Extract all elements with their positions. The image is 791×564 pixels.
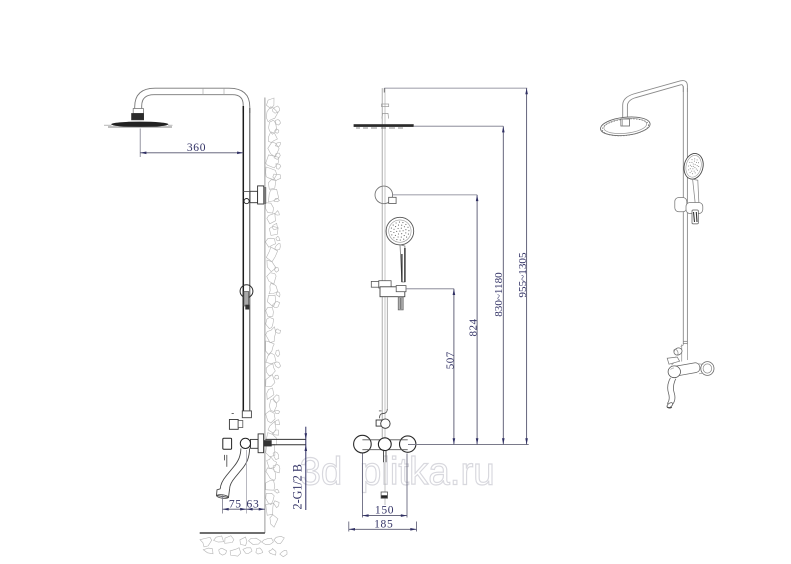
svg-text:955~1305: 955~1305	[517, 252, 529, 298]
svg-text:75: 75	[229, 498, 242, 510]
svg-text:63: 63	[247, 498, 260, 510]
svg-text:507: 507	[444, 351, 456, 369]
svg-text:150: 150	[375, 505, 394, 517]
svg-text:plitka.ru: plitka.ru	[360, 451, 495, 494]
svg-text:185: 185	[374, 519, 393, 531]
svg-text:360: 360	[187, 142, 206, 154]
svg-text:824: 824	[468, 319, 480, 337]
svg-text:830~1180: 830~1180	[493, 272, 505, 317]
svg-text:2-G1/2 B: 2-G1/2 B	[291, 464, 305, 510]
